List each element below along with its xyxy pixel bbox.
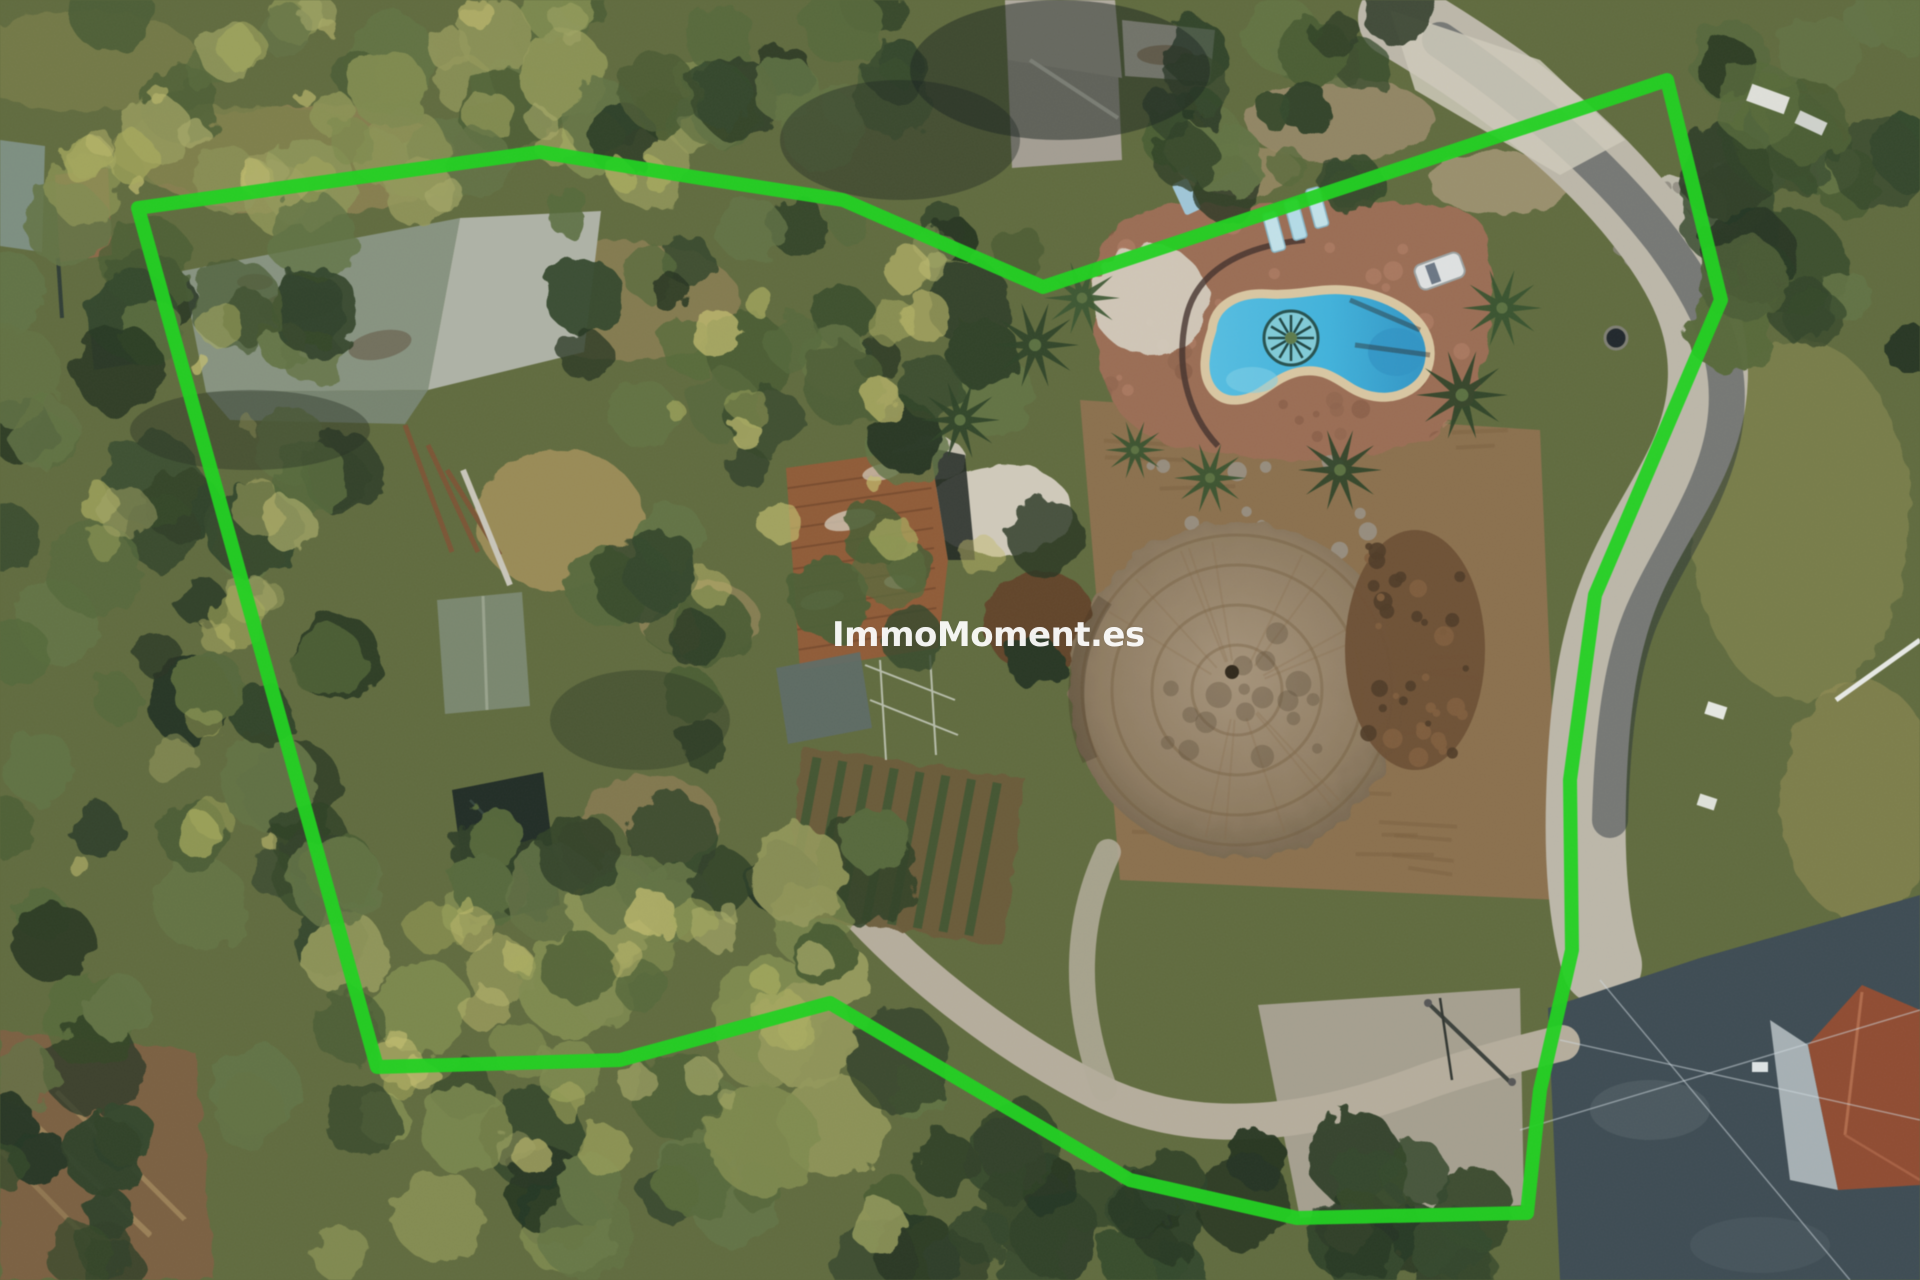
photo-grain-overlay: [0, 0, 1920, 1280]
aerial-scene: [0, 0, 1920, 1280]
aerial-property-photo: ImmoMoment.es: [0, 0, 1920, 1280]
